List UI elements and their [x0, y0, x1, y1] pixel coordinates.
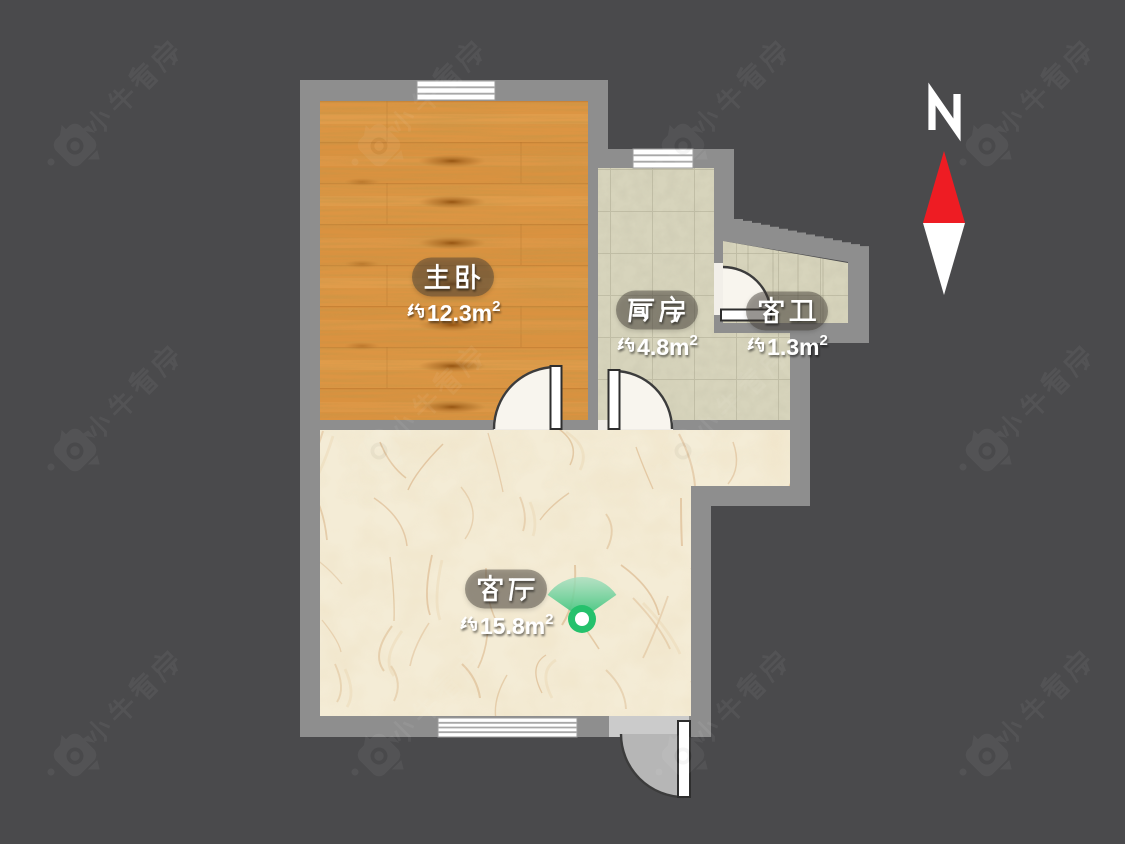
- svg-text:12.3m2: 12.3m2: [427, 298, 501, 327]
- svg-text:15.8m2: 15.8m2: [480, 611, 554, 640]
- svg-text:4.8m2: 4.8m2: [637, 332, 698, 361]
